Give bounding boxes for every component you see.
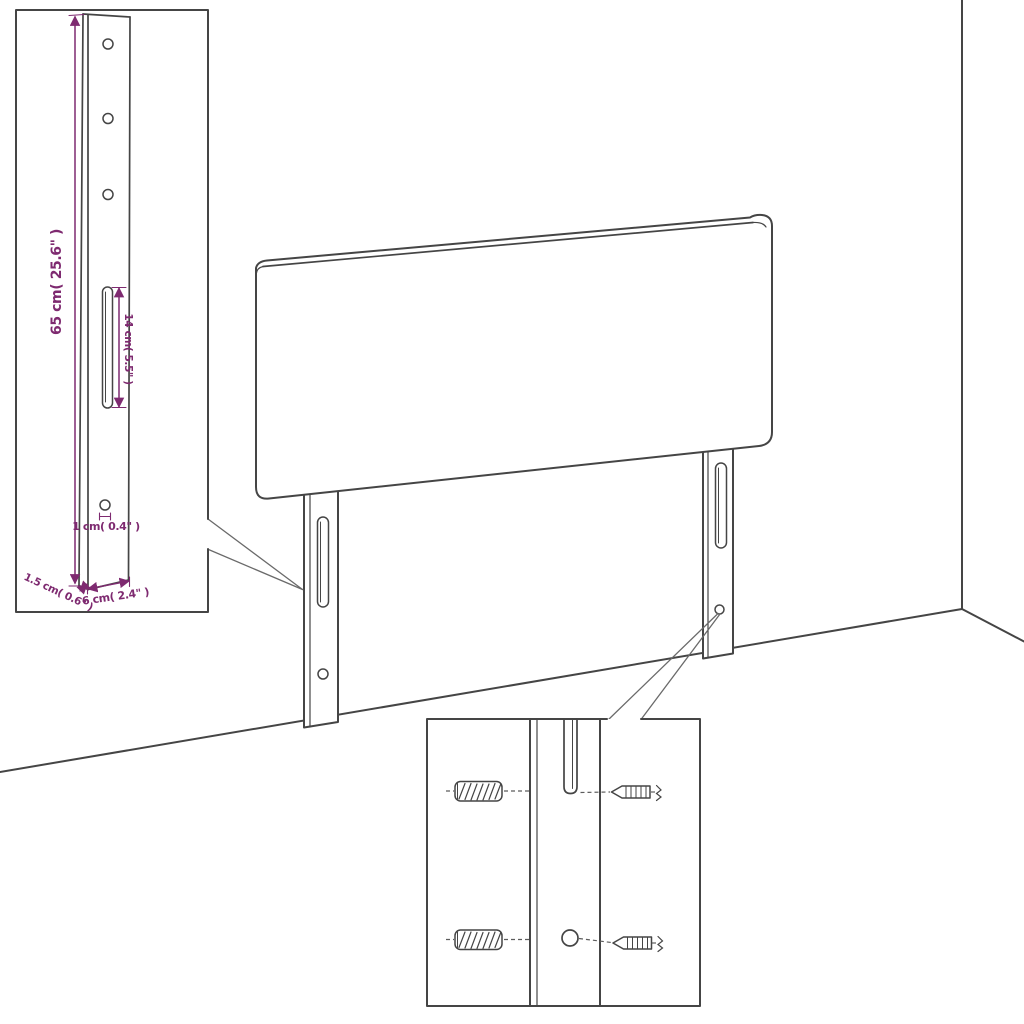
callout-lines-leg-inset [208, 519, 303, 590]
dim-label-hole-diameter: 1 cm( 0.4" ) [72, 520, 140, 533]
wall-plug-bottom [455, 930, 502, 950]
inset-slot [103, 287, 113, 408]
left-leg-hole [318, 669, 328, 679]
inset-hole-2 [103, 114, 113, 124]
left-leg-slot [318, 517, 329, 607]
hardware-detail-inset [427, 719, 700, 1006]
inset-hole-1 [103, 39, 113, 49]
floor-line-right [962, 609, 1024, 642]
dim-label-leg-height: 65 cm( 25.6" ) [49, 229, 65, 335]
left-leg [304, 479, 338, 728]
inset-hole-detail [562, 930, 578, 946]
right-leg-hole [715, 605, 724, 614]
wall-plug-top [455, 782, 502, 802]
inset-hole-3 [103, 190, 113, 200]
leg-detail-inset: 65 cm( 25.6" ) 14 cm( 5.5" ) 1 cm( 0.4" … [16, 10, 208, 614]
dim-label-slot-length: 14 cm( 5.5" ) [122, 313, 134, 384]
right-leg-slot [716, 463, 727, 548]
headboard-panel [256, 215, 772, 499]
diagram-canvas: 65 cm( 25.6" ) 14 cm( 5.5" ) 1 cm( 0.4" … [0, 0, 1024, 1024]
headboard-dimension-diagram: 65 cm( 25.6" ) 14 cm( 5.5" ) 1 cm( 0.4" … [0, 0, 1024, 1024]
inset-small-hole [100, 500, 110, 510]
right-leg [703, 448, 733, 659]
